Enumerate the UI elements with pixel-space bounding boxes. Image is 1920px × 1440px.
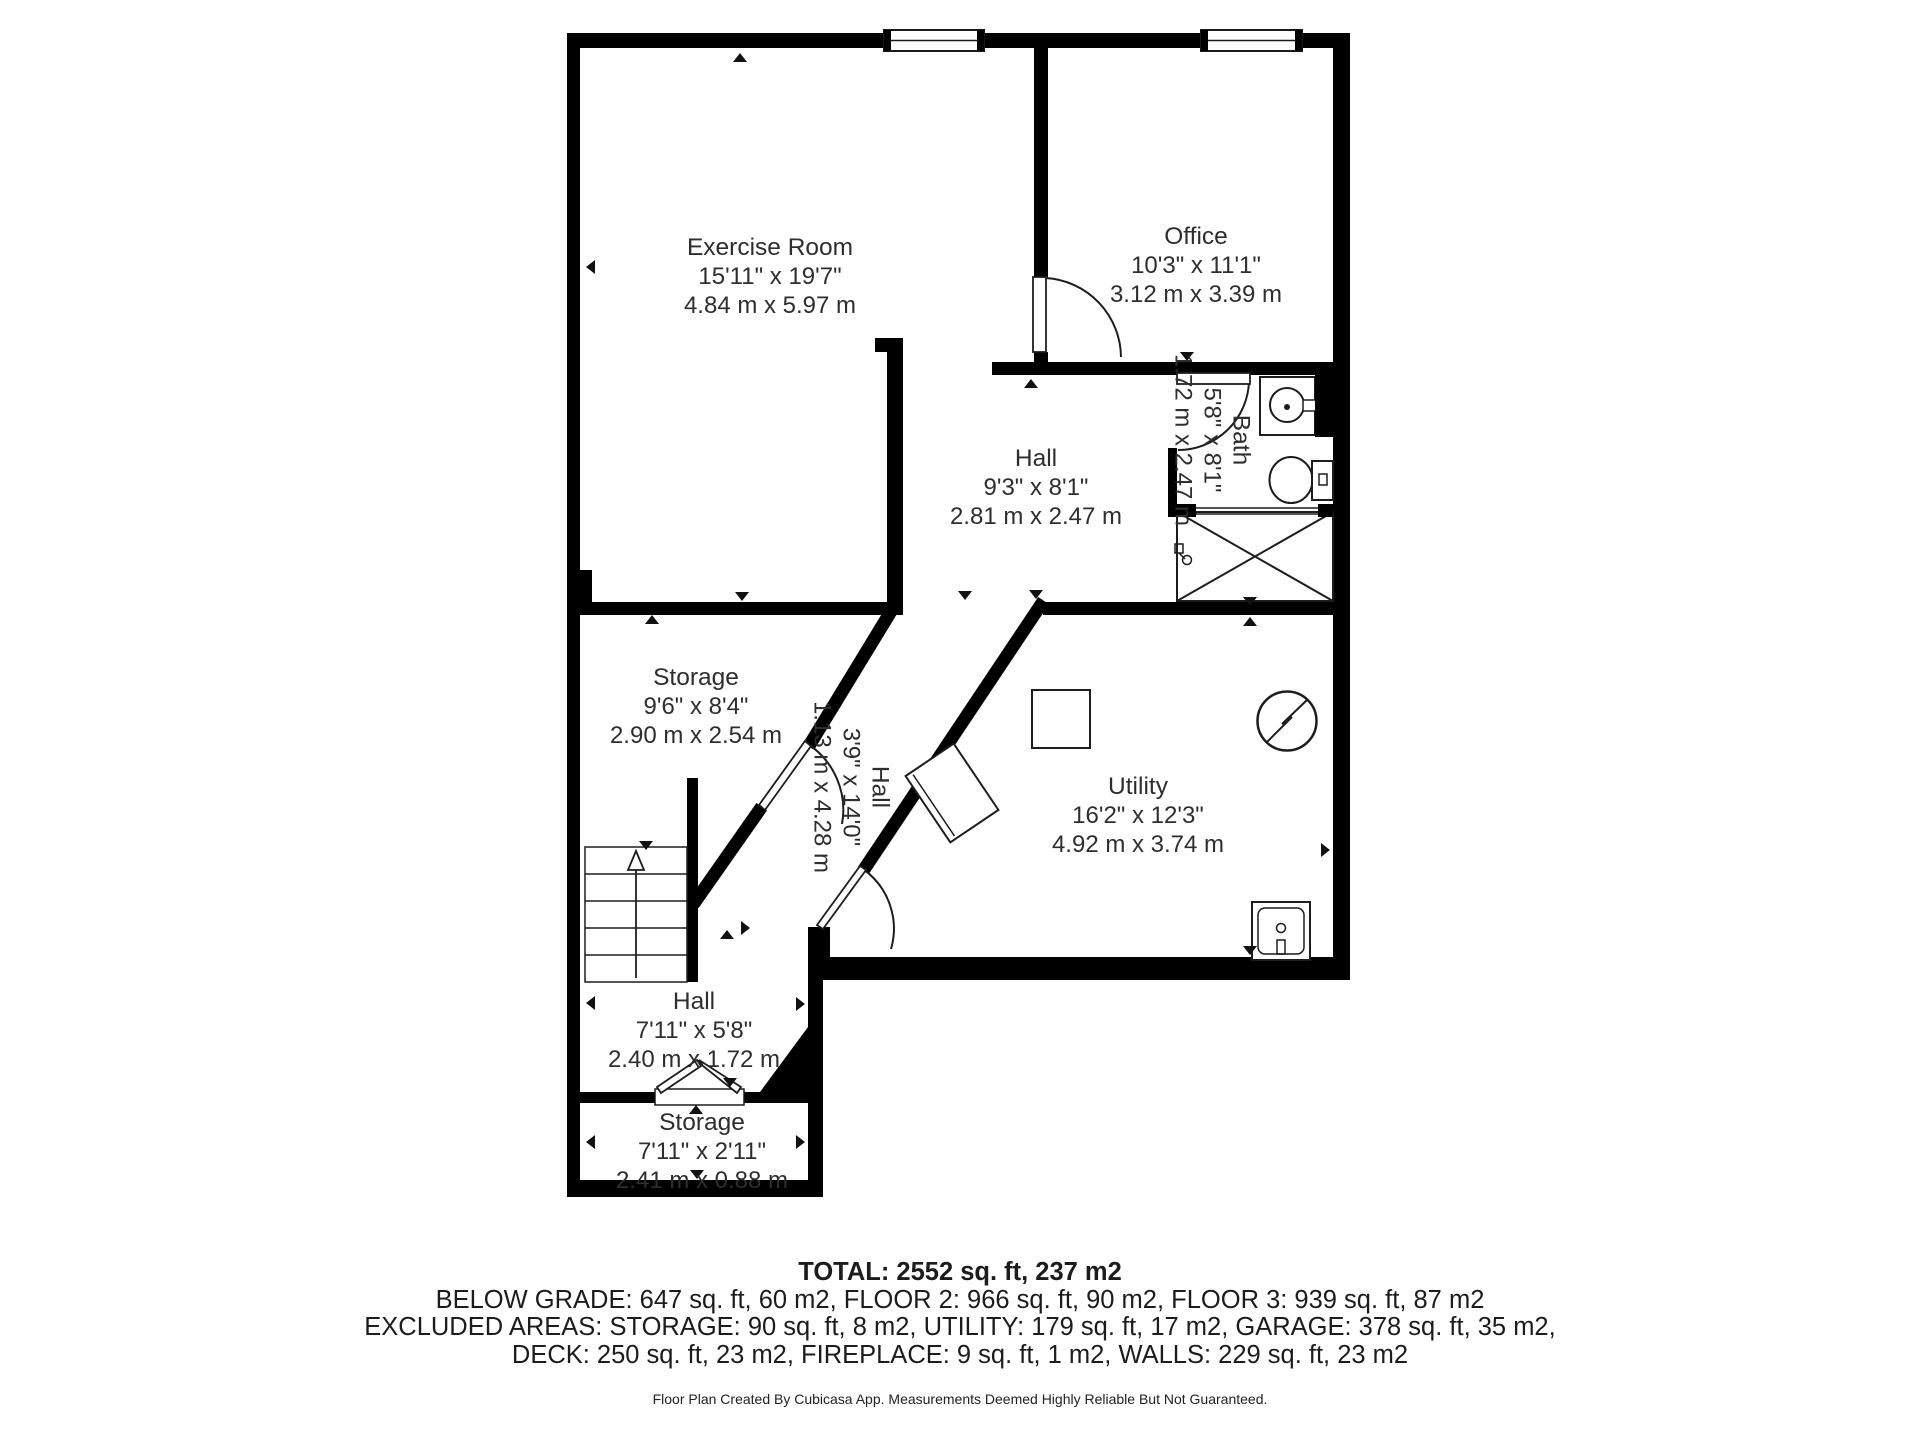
toilet-icon (1270, 457, 1334, 503)
room-label-office: Office 10'3" x 11'1" 3.12 m x 3.39 m (1110, 222, 1282, 309)
room-dim-imperial: 3'9" x 14'0" (837, 701, 866, 873)
stairs (585, 847, 687, 982)
room-dim-metric: 4.92 m x 3.74 m (1052, 830, 1224, 859)
utility-sink-icon (1252, 902, 1310, 960)
summary-floors: BELOW GRADE: 647 sq. ft, 60 m2, FLOOR 2:… (0, 1287, 1920, 1315)
wall-right (1333, 33, 1350, 980)
wall-hall-office (992, 362, 1333, 375)
wall-tab (875, 338, 887, 352)
room-dim-imperial: 5'8" x 8'1" (1198, 354, 1227, 526)
wall-exercise-office (1034, 33, 1048, 277)
room-dim-imperial: 15'11" x 19'7" (684, 262, 856, 291)
wall-hall-utility (1043, 602, 1350, 615)
wall-exercise-storage (567, 602, 897, 615)
room-label-hall-diagonal: Hall 3'9" x 14'0" 1.13 m x 4.28 m (808, 701, 895, 873)
disclaimer: Floor Plan Created By Cubicasa App. Meas… (0, 1386, 1920, 1414)
room-dim-imperial: 9'3" x 8'1" (950, 473, 1122, 502)
electrical-panel-icon (1258, 692, 1317, 751)
room-dim-imperial: 7'11" x 5'8" (608, 1016, 780, 1045)
summary-excluded-1: EXCLUDED AREAS: STORAGE: 90 sq. ft, 8 m2… (0, 1314, 1920, 1342)
room-dim-imperial: 9'6" x 8'4" (610, 692, 782, 721)
room-dim-metric: 2.81 m x 2.47 m (950, 502, 1122, 531)
room-name: Exercise Room (684, 233, 856, 262)
window-exercise (884, 30, 984, 51)
wall-block (1315, 373, 1333, 437)
room-name: Utility (1052, 772, 1224, 801)
summary-total: TOTAL: 2552 sq. ft, 237 m2 (0, 1259, 1920, 1287)
room-dim-metric: 1.13 m x 4.28 m (808, 701, 837, 873)
summary-excluded-2: DECK: 250 sq. ft, 23 m2, FIREPLACE: 9 sq… (0, 1342, 1920, 1370)
wall-hall-storage-right (744, 1092, 808, 1103)
furnace-icon (1032, 690, 1090, 748)
room-label-hall-lower: Hall 7'11" x 5'8" 2.40 m x 1.72 m (608, 987, 780, 1074)
wall-diagonal-upper-b (697, 812, 758, 899)
area-summary: TOTAL: 2552 sq. ft, 237 m2 BELOW GRADE: … (0, 1259, 1920, 1414)
room-dim-imperial: 7'11" x 2'11" (616, 1137, 788, 1166)
room-dim-metric: 1.72 m x 2.47 m (1169, 354, 1198, 526)
room-dim-metric: 2.90 m x 2.54 m (610, 721, 782, 750)
room-dim-metric: 2.41 m x 0.88 m (616, 1166, 788, 1195)
wall-nub (580, 570, 592, 612)
room-label-bath: Bath 5'8" x 8'1" 1.72 m x 2.47 m (1169, 354, 1256, 526)
room-dim-metric: 4.84 m x 5.97 m (684, 291, 856, 320)
door-hinge-block (1034, 352, 1048, 363)
room-dim-imperial: 10'3" x 11'1" (1110, 251, 1282, 280)
appliance-icon (906, 744, 999, 843)
room-dim-metric: 2.40 m x 1.72 m (608, 1045, 780, 1074)
wall-hall-storage-left (567, 1092, 655, 1103)
floor-plan-drawing (0, 0, 1920, 1440)
stairs-up-arrow (628, 851, 644, 978)
wall-lower-right (808, 927, 823, 1197)
room-label-storage-upper: Storage 9'6" x 8'4" 2.90 m x 2.54 m (610, 663, 782, 750)
room-name: Hall (866, 701, 895, 873)
room-name: Bath (1227, 354, 1256, 526)
room-name: Hall (608, 987, 780, 1016)
window-office (1201, 30, 1302, 51)
room-name: Hall (950, 444, 1122, 473)
room-label-storage-lower: Storage 7'11" x 2'11" 2.41 m x 0.88 m (616, 1108, 788, 1195)
floor-plan-page: Exercise Room 15'11" x 19'7" 4.84 m x 5.… (0, 0, 1920, 1440)
door-office (1033, 277, 1121, 357)
wall-exercise-hall (887, 338, 903, 615)
room-name: Office (1110, 222, 1282, 251)
room-dim-metric: 3.12 m x 3.39 m (1110, 280, 1282, 309)
room-name: Storage (616, 1108, 788, 1137)
wall-stairs-right (687, 778, 698, 982)
room-label-exercise: Exercise Room 15'11" x 19'7" 4.84 m x 5.… (684, 233, 856, 320)
room-label-utility: Utility 16'2" x 12'3" 4.92 m x 3.74 m (1052, 772, 1224, 859)
room-label-hall-main: Hall 9'3" x 8'1" 2.81 m x 2.47 m (950, 444, 1122, 531)
room-name: Storage (610, 663, 782, 692)
room-dim-imperial: 16'2" x 12'3" (1052, 801, 1224, 830)
bath-sink-icon (1260, 377, 1316, 435)
